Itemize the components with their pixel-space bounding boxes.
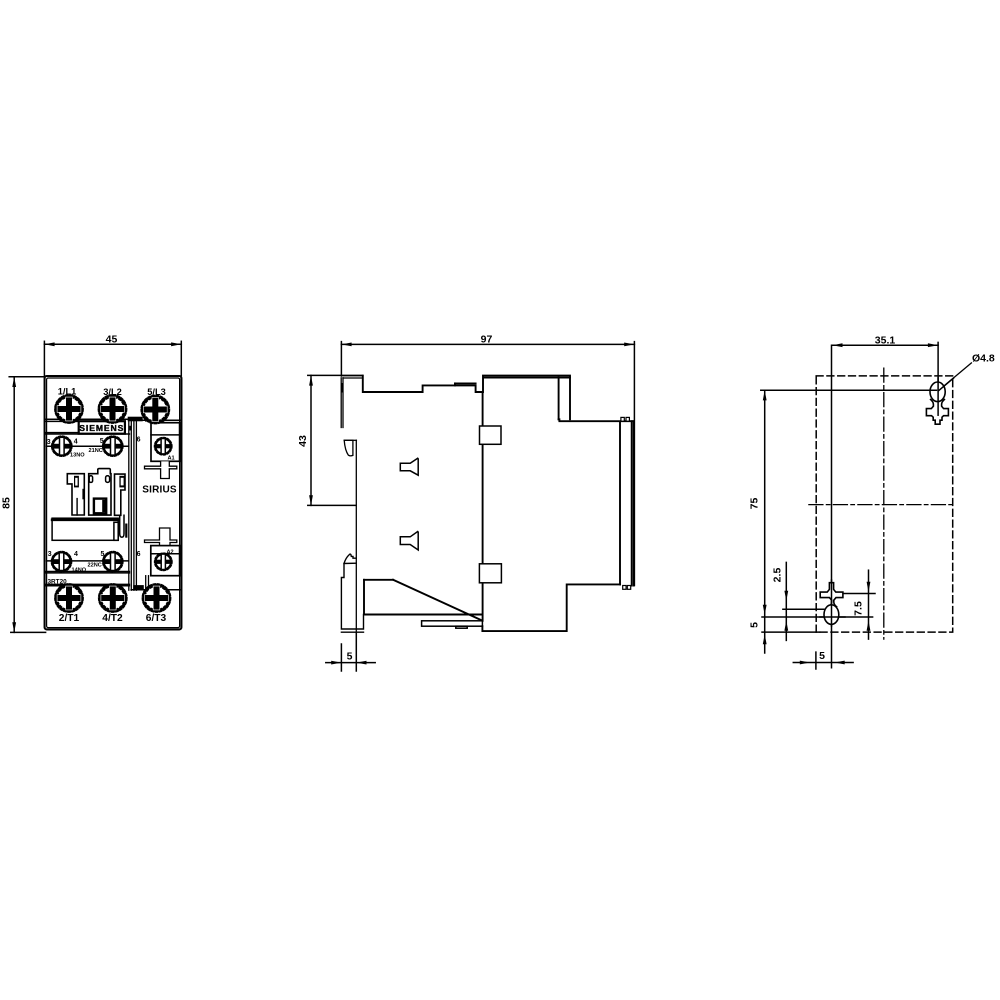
svg-text:5: 5 [819, 650, 825, 662]
svg-text:13NO: 13NO [70, 452, 85, 458]
svg-text:5: 5 [101, 551, 105, 558]
svg-text:1/L1: 1/L1 [58, 387, 77, 397]
svg-text:21NC: 21NC [89, 448, 103, 454]
svg-text:4/T2: 4/T2 [102, 613, 123, 624]
svg-text:43: 43 [297, 435, 309, 447]
svg-text:22NC: 22NC [88, 562, 102, 568]
svg-text:A2: A2 [167, 549, 174, 555]
svg-text:6: 6 [137, 551, 141, 558]
svg-text:35.1: 35.1 [875, 334, 896, 346]
svg-text:5: 5 [749, 622, 761, 628]
svg-text:85: 85 [1, 497, 13, 509]
svg-text:SIEMENS: SIEMENS [79, 423, 124, 433]
svg-text:5: 5 [100, 438, 104, 445]
svg-text:97: 97 [481, 334, 493, 346]
svg-text:Ø4.8: Ø4.8 [972, 353, 995, 365]
svg-text:75: 75 [749, 498, 761, 510]
svg-text:2/T1: 2/T1 [59, 613, 80, 624]
svg-text:14NO: 14NO [72, 568, 87, 574]
svg-text:3RT20: 3RT20 [48, 578, 68, 585]
svg-text:3: 3 [47, 439, 51, 446]
svg-text:5: 5 [347, 650, 353, 662]
svg-text:4: 4 [74, 438, 78, 445]
svg-text:A1: A1 [168, 456, 175, 462]
svg-text:4: 4 [74, 551, 78, 558]
svg-text:6/T3: 6/T3 [146, 613, 167, 624]
svg-text:45: 45 [106, 334, 118, 346]
svg-text:5/L3: 5/L3 [147, 387, 166, 397]
svg-text:3/L2: 3/L2 [103, 387, 122, 397]
svg-text:SIRIUS: SIRIUS [142, 485, 177, 496]
svg-text:7.5: 7.5 [853, 601, 865, 616]
svg-text:6: 6 [137, 437, 141, 444]
svg-text:3: 3 [48, 551, 52, 558]
svg-text:2.5: 2.5 [772, 568, 784, 583]
